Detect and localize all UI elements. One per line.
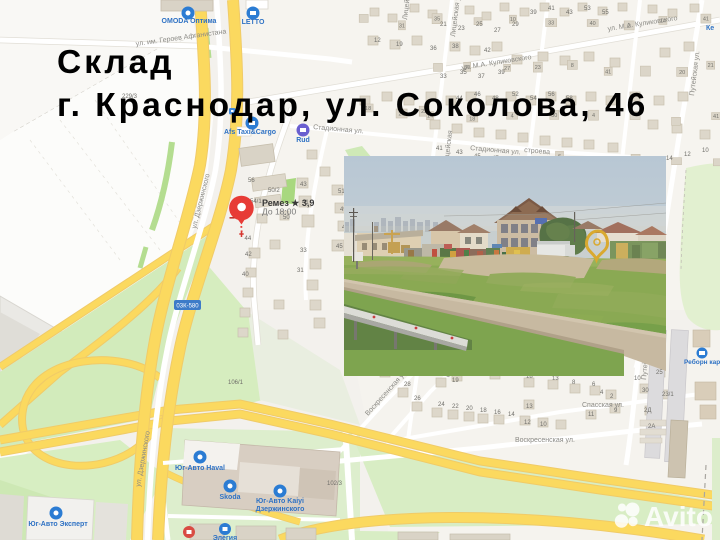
svg-text:19: 19: [452, 378, 459, 384]
svg-text:Воскресенская ул.: Воскресенская ул.: [515, 437, 575, 444]
svg-text:23/1: 23/1: [662, 392, 674, 398]
svg-text:28: 28: [404, 382, 411, 388]
svg-text:38: 38: [452, 44, 459, 50]
svg-text:26: 26: [414, 396, 421, 402]
svg-text:12: 12: [374, 38, 381, 44]
svg-text:24: 24: [438, 402, 445, 408]
svg-text:43: 43: [456, 150, 463, 156]
svg-text:Юг-Авто Эксперт: Юг-Авто Эксперт: [28, 521, 88, 528]
svg-text:Элегия: Элегия: [213, 535, 237, 540]
svg-text:Юг-Авто Kaiyi: Юг-Авто Kaiyi: [256, 498, 304, 505]
svg-text:Спасская ул.: Спасская ул.: [582, 402, 624, 409]
svg-text:2А: 2А: [648, 424, 655, 430]
svg-text:29: 29: [512, 22, 519, 28]
svg-text:41: 41: [703, 17, 709, 23]
svg-text:Ке: Ке: [706, 25, 714, 32]
svg-text:14: 14: [508, 412, 515, 418]
svg-text:31: 31: [399, 23, 405, 29]
svg-text:10: 10: [702, 148, 709, 154]
svg-text:25: 25: [656, 370, 663, 376]
svg-text:33: 33: [548, 21, 554, 27]
svg-text:40: 40: [590, 21, 596, 27]
svg-text:14: 14: [666, 156, 673, 162]
svg-text:39: 39: [498, 70, 505, 76]
svg-text:Rud: Rud: [296, 137, 310, 144]
svg-text:13: 13: [526, 404, 533, 410]
svg-text:Юг-Авто Haval: Юг-Авто Haval: [175, 465, 225, 472]
svg-text:19: 19: [396, 42, 403, 48]
svg-text:40: 40: [242, 272, 249, 278]
svg-text:22: 22: [452, 404, 459, 410]
svg-text:2Д: 2Д: [644, 408, 651, 414]
svg-text:20: 20: [466, 406, 473, 412]
svg-text:10: 10: [540, 422, 547, 428]
svg-text:16: 16: [494, 410, 501, 416]
svg-text:8: 8: [571, 63, 574, 69]
svg-text:13: 13: [552, 376, 559, 382]
svg-text:33: 33: [300, 248, 307, 254]
svg-text:45: 45: [336, 244, 343, 250]
svg-text:55: 55: [602, 10, 609, 16]
svg-text:11: 11: [588, 412, 595, 418]
svg-text:Дзержинского: Дзержинского: [256, 506, 305, 513]
svg-text:42: 42: [245, 252, 252, 258]
svg-text:Склад: Склад: [57, 44, 175, 81]
svg-text:56: 56: [248, 178, 255, 184]
svg-text:До 18:00: До 18:00: [262, 207, 296, 217]
svg-text:31: 31: [297, 268, 304, 274]
svg-text:Реборн каре: Реборн каре: [684, 358, 720, 366]
svg-text:41: 41: [713, 114, 719, 120]
svg-text:25: 25: [476, 22, 483, 28]
svg-text:Avito: Avito: [644, 501, 713, 532]
svg-text:53: 53: [584, 6, 591, 12]
svg-text:21: 21: [708, 63, 714, 69]
svg-text:LETTO: LETTO: [242, 19, 265, 26]
svg-text:23: 23: [458, 26, 465, 32]
svg-text:33: 33: [440, 74, 447, 80]
svg-text:50/2: 50/2: [268, 188, 280, 194]
svg-text:42: 42: [484, 48, 491, 54]
svg-text:27: 27: [504, 66, 510, 72]
svg-text:41: 41: [548, 6, 555, 12]
svg-text:102/3: 102/3: [327, 481, 343, 487]
svg-text:12: 12: [684, 152, 691, 158]
svg-text:44: 44: [245, 236, 252, 242]
svg-text:03К-580: 03К-580: [176, 304, 199, 310]
svg-text:Skoda: Skoda: [219, 494, 240, 501]
svg-text:37: 37: [478, 74, 485, 80]
svg-text:39: 39: [530, 10, 537, 16]
svg-text:21: 21: [440, 22, 447, 28]
svg-text:20: 20: [679, 70, 685, 76]
svg-text:36: 36: [430, 46, 437, 52]
svg-text:30: 30: [642, 388, 649, 394]
svg-text:41: 41: [605, 69, 611, 75]
svg-text:OMODA Оптима: OMODA Оптима: [162, 18, 217, 25]
svg-text:г. Краснодар, ул. Соколова, 46: г. Краснодар, ул. Соколова, 46: [57, 87, 648, 124]
svg-text:Afs Taxi&Cargo: Afs Taxi&Cargo: [224, 129, 276, 136]
svg-text:43: 43: [566, 10, 573, 16]
svg-text:12: 12: [524, 420, 531, 426]
svg-text:27: 27: [494, 28, 501, 34]
svg-text:43: 43: [300, 182, 307, 188]
svg-text:18: 18: [480, 408, 487, 414]
svg-text:41: 41: [436, 146, 443, 152]
svg-text:23: 23: [535, 65, 541, 71]
svg-text:106/1: 106/1: [228, 380, 244, 386]
